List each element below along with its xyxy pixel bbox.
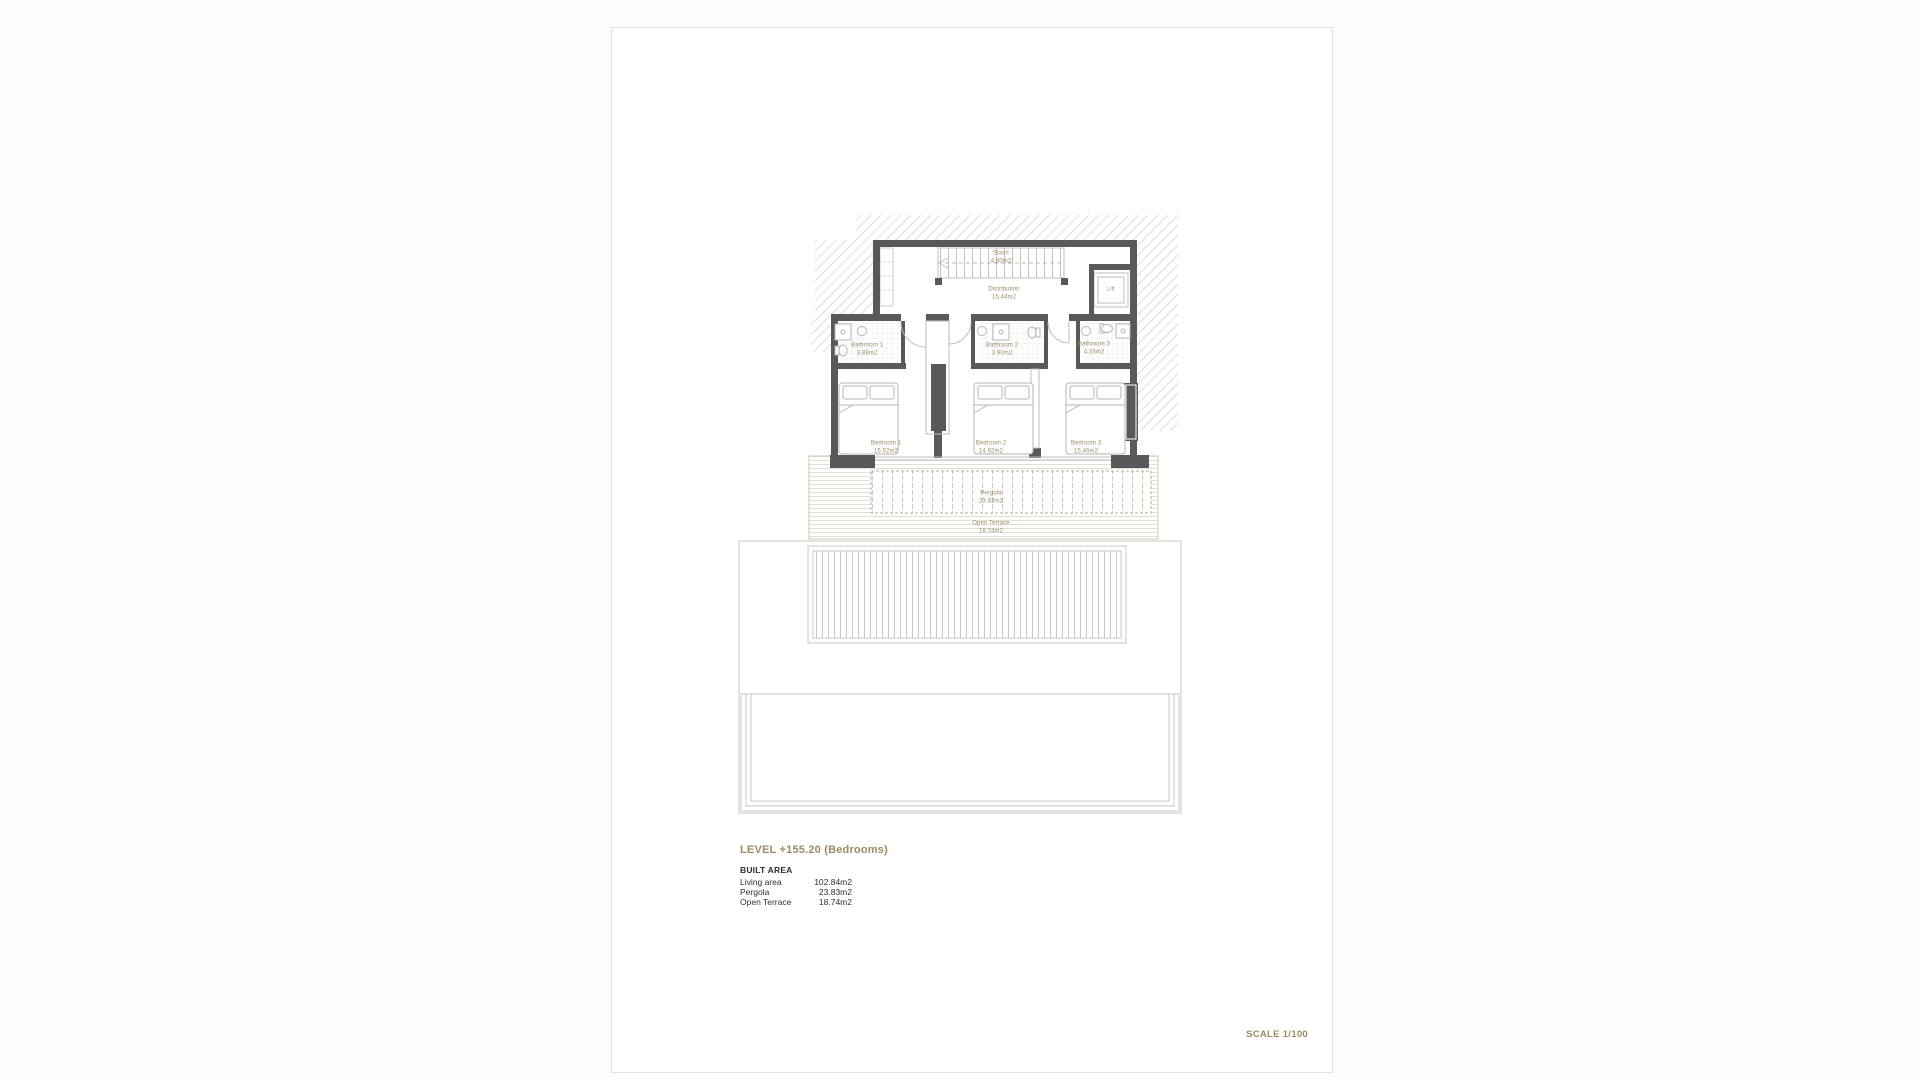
- floor-plan-drawing: [612, 28, 1334, 1074]
- bathroom2-name: Bathroom 2: [986, 343, 1018, 349]
- bedroom2-label: Bedroom 2 14.92m2: [976, 441, 1006, 456]
- row-value: 18.74m2: [819, 898, 852, 908]
- drawing-canvas: Stairs 4.80m2 Distribution 15.44m2 Lift …: [0, 0, 1920, 1080]
- bedroom3-label: Bedroom 3 15.46m2: [1071, 441, 1101, 456]
- table-row: Open Terrace 18.74m2: [740, 898, 852, 908]
- bathroom3-area: 4.33m2: [1078, 349, 1110, 357]
- scale-label: SCALE 1/100: [1246, 1029, 1308, 1040]
- bedroom1-label: Bedroom 1 15.52m2: [871, 441, 901, 456]
- bathroom3-label: Bathroom 3 4.33m2: [1078, 342, 1110, 357]
- level-title: LEVEL +155.20 (Bedrooms): [740, 844, 940, 856]
- distribution-label: Distribution 15.44m2: [988, 287, 1019, 302]
- bedroom1-area: 15.52m2: [871, 448, 901, 456]
- pergola-area: 23.83m2: [979, 498, 1003, 506]
- lift-name: Lift: [1107, 287, 1115, 293]
- bedroom3-name: Bedroom 3: [1071, 441, 1101, 447]
- lower-plot: [739, 541, 1181, 813]
- open-terrace-name: Open Terrace: [972, 521, 1009, 527]
- built-area-table: Living area 102.84m2 Pergola 23.83m2 Ope…: [740, 878, 852, 908]
- distribution-area: 15.44m2: [988, 294, 1019, 302]
- bedroom2-area: 14.92m2: [976, 448, 1006, 456]
- bedroom1-name: Bedroom 1: [871, 441, 901, 447]
- bathroom1-label: Bathroom 1 3.88m2: [851, 343, 883, 358]
- plan-sheet: Stairs 4.80m2 Distribution 15.44m2 Lift …: [611, 27, 1333, 1073]
- bedroom2-name: Bedroom 2: [976, 441, 1006, 447]
- built-area-heading: BUILT AREA: [740, 865, 940, 875]
- pergola-name: Pergola: [980, 491, 1001, 497]
- stairs-name: Stairs: [993, 251, 1009, 257]
- bathroom2-area: 3.90m2: [986, 350, 1018, 358]
- open-terrace-label: Open Terrace 18.74m2: [972, 521, 1009, 536]
- legend-block: LEVEL +155.20 (Bedrooms) BUILT AREA Livi…: [740, 844, 940, 908]
- stairs-label: Stairs 4.80m2: [991, 251, 1012, 266]
- distribution-name: Distribution: [988, 287, 1019, 293]
- bathroom1-name: Bathroom 1: [851, 343, 883, 349]
- bathroom1-area: 3.88m2: [851, 350, 883, 358]
- stairs-area: 4.80m2: [991, 258, 1012, 266]
- lift-label: Lift: [1107, 287, 1115, 294]
- bathroom2-label: Bathroom 2 3.90m2: [986, 343, 1018, 358]
- bedroom3-area: 15.46m2: [1071, 448, 1101, 456]
- row-label: Open Terrace: [740, 898, 791, 908]
- bathroom3-name: Bathroom 3: [1078, 342, 1110, 348]
- open-terrace-area: 18.74m2: [972, 528, 1009, 536]
- pergola-label: Pergola 23.83m2: [979, 491, 1003, 506]
